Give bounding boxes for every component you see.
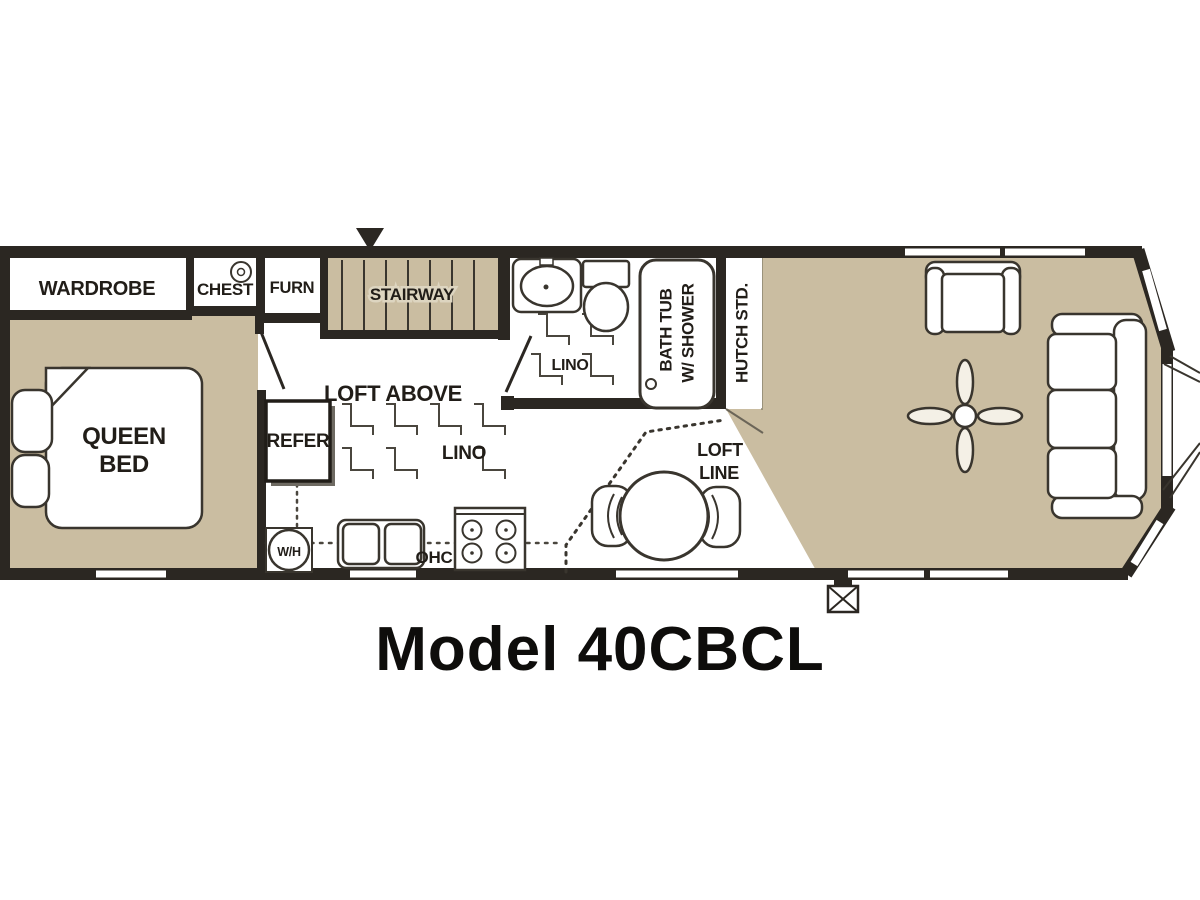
label-stairway: STAIRWAY — [370, 285, 455, 304]
chest-lamp-icon — [231, 262, 251, 282]
label-loft-above: LOFT ABOVE — [324, 381, 462, 406]
furn-bottom-wall — [262, 313, 327, 323]
sofa-cushion — [1048, 448, 1116, 498]
label-lino-bath: LINO — [551, 357, 588, 374]
entry-step — [828, 586, 858, 612]
label-ohc: OHC — [416, 548, 453, 567]
sofa-cushion — [1048, 334, 1116, 390]
armchair — [926, 262, 1020, 334]
label-bath-tub-1: BATH TUB — [656, 288, 675, 371]
label-hutch: HUTCH STD. — [732, 283, 751, 383]
label-queen-bed-1: QUEEN — [82, 423, 166, 450]
bedroom-door-swing — [261, 332, 284, 389]
bath-faucet — [540, 258, 553, 265]
label-refer: REFER — [267, 431, 330, 452]
label-lino-kitchen: LINO — [442, 443, 486, 464]
bathtub — [640, 260, 714, 408]
toilet-bowl — [584, 283, 628, 331]
furn-stair-wall — [320, 252, 328, 338]
stair-bottom-wall — [320, 330, 510, 339]
window — [96, 571, 166, 578]
window — [350, 571, 416, 578]
stair-bath-wall — [498, 252, 510, 340]
wardrobe-bottom-wall — [8, 310, 192, 320]
label-furn: FURN — [270, 279, 315, 297]
floor-plan-page: WARDROBE CHEST FURN STAIRWAY QUEEN BED R… — [0, 0, 1200, 900]
bedroom-wall-upper — [255, 310, 264, 334]
label-queen-bed-2: BED — [99, 451, 149, 478]
label-loft-line-2: LINE — [699, 463, 739, 483]
window — [1005, 249, 1085, 256]
bath-hutch-wall — [716, 252, 726, 409]
model-title: Model 40CBCL — [375, 615, 824, 684]
sofa-cushion — [1048, 390, 1116, 448]
label-loft-line-1: LOFT — [697, 440, 743, 460]
bath-sink-drain — [544, 285, 549, 290]
window — [616, 571, 738, 578]
left-wall — [0, 246, 10, 580]
pillow — [12, 455, 49, 507]
label-wh: W/H — [277, 545, 301, 559]
wardrobe-right-wall — [186, 252, 194, 312]
chest-bottom-wall — [190, 306, 262, 316]
chest-furn-divider-wall — [256, 252, 265, 314]
window — [848, 571, 924, 578]
dining — [592, 472, 740, 560]
kitchen-sink-bowl — [343, 524, 379, 564]
window — [905, 249, 1000, 256]
window — [1163, 364, 1172, 476]
label-chest: CHEST — [197, 280, 254, 299]
pillow — [12, 390, 52, 452]
sofa — [1048, 314, 1146, 518]
window — [930, 571, 1008, 578]
label-wardrobe: WARDROBE — [39, 278, 156, 300]
bath-door-swing — [506, 336, 531, 392]
floor-plan-svg: WARDROBE CHEST FURN STAIRWAY QUEEN BED R… — [0, 0, 1200, 900]
label-bath-tub-2: W/ SHOWER — [678, 283, 697, 382]
dining-table — [620, 472, 708, 560]
